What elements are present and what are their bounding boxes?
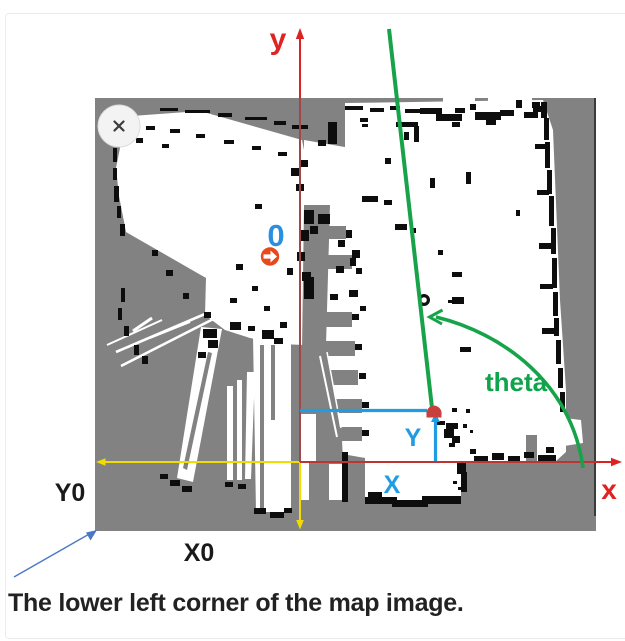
svg-text:theta: theta — [485, 367, 548, 397]
svg-text:Y0: Y0 — [55, 479, 86, 507]
svg-text:The lower left corner of the m: The lower left corner of the map image. — [8, 589, 464, 617]
svg-text:X0: X0 — [184, 539, 215, 567]
svg-text:x: x — [601, 474, 617, 505]
svg-text:Y: Y — [405, 424, 422, 452]
svg-text:X: X — [384, 471, 401, 499]
svg-text:y: y — [270, 23, 287, 56]
